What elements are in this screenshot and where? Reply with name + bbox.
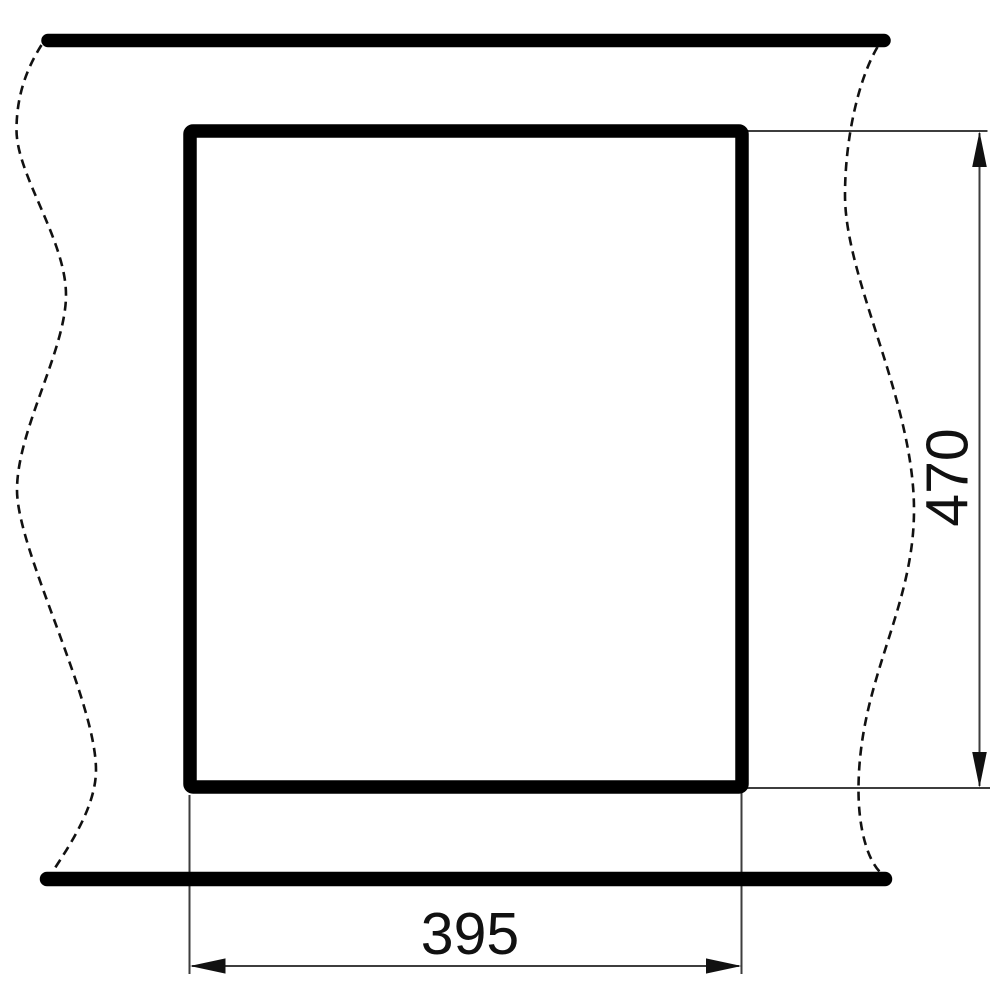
svg-text:395: 395	[421, 901, 519, 967]
svg-text:470: 470	[915, 428, 981, 526]
